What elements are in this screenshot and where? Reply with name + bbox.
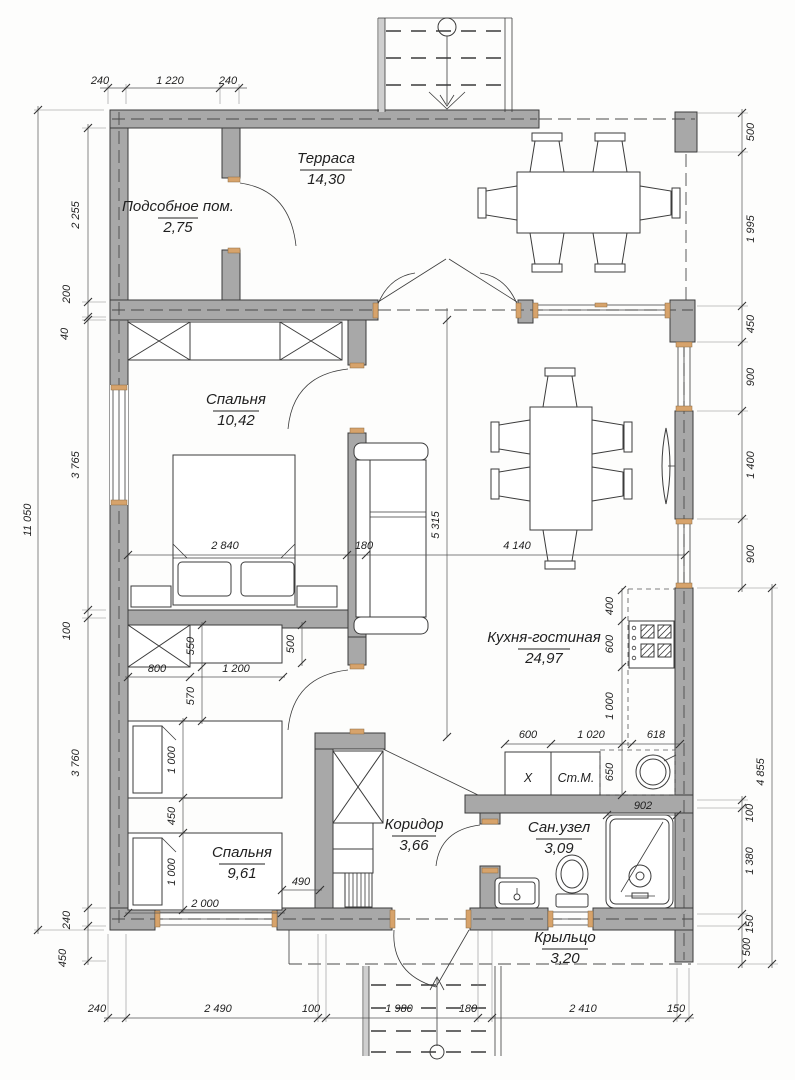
dim-label: 2 840 xyxy=(210,540,239,552)
dim-label: 4 140 xyxy=(503,540,531,552)
chair-icon xyxy=(593,133,627,172)
pillow xyxy=(241,562,294,596)
divider-pier-low xyxy=(348,637,366,665)
dim-label: 1 400 xyxy=(745,450,757,478)
terrace-dining-table-icon xyxy=(478,133,680,272)
dim-label: 1 020 xyxy=(577,729,605,741)
room-name: Кухня-гостиная xyxy=(487,629,600,646)
dim-label: 2 410 xyxy=(568,1003,597,1015)
door-swing-icon xyxy=(228,177,296,253)
dim-label: 3 760 xyxy=(70,748,82,776)
shelf xyxy=(333,849,373,873)
dim-label: 650 xyxy=(604,762,616,781)
dim-label: 618 xyxy=(647,729,666,741)
dim-label: 2 255 xyxy=(70,200,82,229)
chair-icon xyxy=(593,233,627,272)
door-swing-icon xyxy=(288,363,364,433)
dim-label: 200 xyxy=(61,284,73,304)
terrace-corner-pier xyxy=(675,112,697,152)
window-icon xyxy=(548,911,593,927)
chair-icon xyxy=(530,133,564,172)
pillow xyxy=(133,726,162,793)
door-swing-icon xyxy=(436,819,498,873)
dim-label: 2 490 xyxy=(203,1003,232,1015)
dim-label: 1 220 xyxy=(156,75,184,87)
porch-stairs-icon xyxy=(363,966,501,1059)
corridor-wall-stub xyxy=(315,733,385,749)
dim-label: 150 xyxy=(744,914,756,933)
chair-icon xyxy=(543,530,577,569)
desk-icon xyxy=(190,625,282,663)
chair-icon xyxy=(491,467,530,501)
room-label-bedroom-1: Спальня 10,42 xyxy=(206,391,266,429)
dim-label: 1 380 xyxy=(744,846,756,874)
dim-label: 450 xyxy=(745,314,757,333)
front-wall-corner xyxy=(670,300,695,342)
room-area: 14,30 xyxy=(307,171,345,188)
dim-label: 240 xyxy=(87,1003,107,1015)
appliance-label-x: X xyxy=(523,771,533,785)
room-label-utility: Подсобное пом. 2,75 xyxy=(122,198,234,236)
room-area: 24,97 xyxy=(524,650,563,667)
room-name: Сан.узел xyxy=(528,819,591,836)
room-area: 10,42 xyxy=(217,412,255,429)
dim-label: 1 995 xyxy=(745,214,757,242)
washbasin-icon xyxy=(495,878,539,908)
wardrobe-icon xyxy=(128,322,342,360)
floor-plan-sheet: Терраса 14,30 Подсобное пом. 2,75 Спальн… xyxy=(0,0,795,1080)
room-area: 3,20 xyxy=(550,950,580,967)
room-name: Терраса xyxy=(297,150,355,167)
dim-label: 500 xyxy=(741,937,753,956)
dim-label: 600 xyxy=(604,634,616,653)
sofa-icon xyxy=(354,443,428,634)
dim-label: 1 200 xyxy=(222,663,250,675)
room-label-kitchen-living: Кухня-гостиная 24,97 xyxy=(487,629,600,667)
dim-label: 902 xyxy=(634,800,652,812)
dim-label: 2 000 xyxy=(190,898,219,910)
divider-pier-top xyxy=(348,320,366,365)
room-label-porch: Крыльцо 3,20 xyxy=(534,929,596,967)
dim-label: 450 xyxy=(166,806,178,825)
nightstand-icon xyxy=(131,586,171,607)
dim-label: 3 765 xyxy=(70,450,82,478)
entry-stairs-icon xyxy=(378,18,512,112)
radiator-icon xyxy=(662,428,675,504)
kitchen-counter xyxy=(505,589,676,795)
chair-icon xyxy=(592,420,632,454)
window-icon xyxy=(676,342,692,411)
floor-plan: Терраса 14,30 Подсобное пом. 2,75 Спальн… xyxy=(0,0,795,1080)
corridor-diagonal xyxy=(383,749,478,795)
room-label-bathroom: Сан.узел 3,09 xyxy=(528,819,591,857)
dim-label: 570 xyxy=(185,686,197,705)
dim-label: 600 xyxy=(519,729,538,741)
dim-label: 550 xyxy=(185,636,197,655)
dim-label: 4 855 xyxy=(755,757,767,785)
dim-label: 900 xyxy=(745,367,757,386)
dim-label: 100 xyxy=(61,621,73,640)
dim-label: 450 xyxy=(57,948,69,967)
dim-label: 490 xyxy=(292,876,311,888)
dim-label: 40 xyxy=(59,327,71,340)
room-area: 2,75 xyxy=(162,219,193,236)
wardrobe-icon xyxy=(128,625,190,667)
room-area: 3,66 xyxy=(399,837,429,854)
chair-icon xyxy=(491,420,530,454)
utility-wall-upper xyxy=(222,128,240,178)
toilet-icon xyxy=(556,855,588,907)
dim-label: 800 xyxy=(148,663,167,675)
dim-label: 180 xyxy=(355,540,374,552)
room-name: Коридор xyxy=(385,816,444,833)
room-name: Крыльцо xyxy=(534,929,596,946)
kitchen-sink-icon xyxy=(636,755,676,789)
dim-label: 1 980 xyxy=(385,1003,413,1015)
pillow xyxy=(178,562,231,596)
window-icon xyxy=(533,303,670,318)
room-name: Подсобное пом. xyxy=(122,198,234,215)
door-swing-icon xyxy=(288,664,364,734)
dim-label: 400 xyxy=(604,596,616,615)
stove-icon xyxy=(629,621,674,668)
dim-label: 1 000 xyxy=(166,857,178,885)
shelf xyxy=(333,823,373,849)
double-bed-icon xyxy=(131,455,337,607)
window-icon xyxy=(155,911,277,927)
kitchen-dining-table-icon xyxy=(491,368,632,569)
ladder-icon xyxy=(345,873,372,907)
chair-icon xyxy=(592,467,632,501)
dim-label: 240 xyxy=(61,910,73,930)
dim-label: 900 xyxy=(745,544,757,563)
window-icon xyxy=(110,385,128,505)
room-name: Спальня xyxy=(206,391,266,408)
utility-wall-lower xyxy=(222,250,240,302)
chair-icon xyxy=(530,233,564,272)
dim-label: 1 000 xyxy=(604,691,616,719)
door-swing-icon xyxy=(390,910,471,987)
nightstand-icon xyxy=(297,586,337,607)
chair-icon xyxy=(640,186,680,220)
dim-label: 240 xyxy=(218,75,238,87)
single-bed-icon xyxy=(128,721,282,798)
room-label-corridor: Коридор 3,66 xyxy=(385,816,444,854)
room-label-terrace: Терраса 14,30 xyxy=(297,150,355,188)
window-icon xyxy=(676,519,692,588)
dim-label: 100 xyxy=(744,803,756,822)
dim-label: 1 000 xyxy=(166,745,178,773)
room-name: Спальня xyxy=(212,844,272,861)
chair-icon xyxy=(543,368,577,407)
dim-label: 240 xyxy=(90,75,110,87)
dim-label: 5 315 xyxy=(430,510,442,538)
dim-label: 500 xyxy=(745,122,757,141)
room-area: 9,61 xyxy=(227,865,256,882)
dim-label: 11 050 xyxy=(22,503,34,537)
corridor-wall-left xyxy=(315,749,333,908)
appliance-label-washer: Ст.М. xyxy=(558,771,595,785)
room-area: 3,09 xyxy=(544,840,574,857)
dim-label: 180 xyxy=(459,1003,478,1015)
dim-label: 150 xyxy=(667,1003,686,1015)
bathroom-wall-top xyxy=(465,795,693,813)
shower-icon xyxy=(606,815,673,908)
pillow xyxy=(133,838,162,905)
dim-label: 100 xyxy=(302,1003,321,1015)
dim-label: 500 xyxy=(285,634,297,653)
chair-icon xyxy=(478,186,517,220)
